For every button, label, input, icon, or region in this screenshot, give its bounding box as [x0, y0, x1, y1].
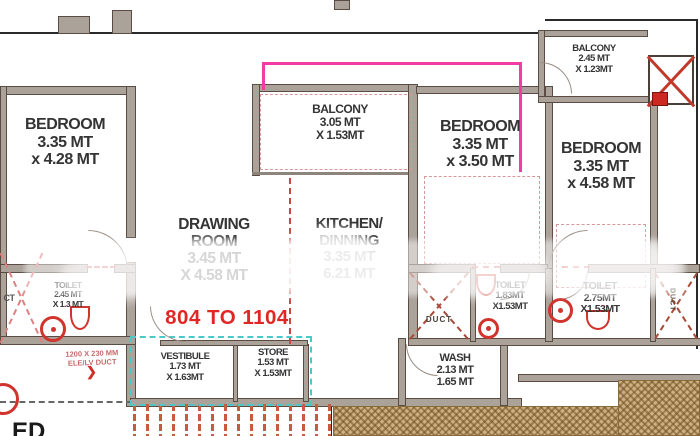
magenta-line-left	[262, 62, 265, 90]
duct-label-right: DUCT	[668, 288, 676, 311]
wall-segment	[538, 30, 648, 37]
wall-pier	[334, 0, 350, 10]
wall-segment	[252, 84, 260, 176]
wall-pier	[112, 10, 132, 34]
wc-fixture-icon	[0, 383, 19, 415]
room-label-wash: WASH 2.13 MT 1.65 MT	[412, 352, 498, 388]
wall-segment	[252, 172, 416, 175]
wall-segment	[126, 86, 136, 238]
door-opening-dashed	[86, 266, 116, 268]
wall-segment	[0, 264, 88, 273]
plan-outline-top-right	[545, 19, 698, 21]
room-label-bedroom-right: BEDROOM 3.35 MT x 4.58 MT	[551, 140, 651, 193]
door-opening-dashed	[472, 266, 500, 268]
room-label-drawing-room: DRAWING ROOM 3.45 MT X 4.58 MT	[148, 216, 280, 284]
room-label-kitchen-dining: KITCHEN/ DINNING 3.35 MT 6.21 MT	[291, 216, 407, 282]
red-shaft-box	[652, 92, 668, 106]
room-label-toilet-left: TOILET 2.45 MT X 1.3 MT	[32, 281, 104, 309]
door-arc	[88, 230, 128, 270]
wall-segment	[538, 96, 656, 103]
door-opening-dashed	[562, 266, 590, 268]
room-label-store: STORE 1.53 MT X 1.53MT	[240, 348, 306, 379]
plan-outline-right	[696, 19, 698, 349]
door-arc	[548, 230, 588, 270]
wall-segment	[0, 86, 133, 95]
wall-segment	[416, 86, 553, 94]
furniture-outline	[424, 176, 540, 264]
room-label-vestibule: VESTIBULE 1.73 MT X 1.63MT	[138, 352, 232, 383]
terrace-hatch	[618, 380, 700, 436]
wall-segment	[0, 336, 136, 345]
wall-segment	[650, 268, 656, 342]
wc-fixture-icon	[40, 316, 66, 342]
room-label-balcony-center: BALCONY 3.05 MT X 1.53MT	[280, 103, 400, 143]
duct-label-middle: DUCT	[414, 316, 464, 325]
wall-segment	[408, 264, 476, 273]
wall-segment	[398, 338, 406, 406]
wall-segment	[650, 103, 658, 272]
partial-caption-text: ED	[12, 418, 45, 436]
wc-fixture-icon	[478, 318, 499, 339]
unit-range-text: 804 TO 1104	[146, 306, 308, 330]
room-label-toilet-right: TOILET 2.75MT X1.53MT	[556, 281, 644, 316]
wall-segment	[408, 338, 700, 346]
room-label-bedroom-center: BEDROOM 3.35 MT x 3.50 MT	[418, 118, 542, 171]
room-label-balcony-top-right: BALCONY 2.45 MT X 1.23MT	[548, 44, 640, 75]
floor-plan: BEDROOM 3.35 MT x 4.28 MT BALCONY 3.05 M…	[0, 0, 700, 436]
duct-label-left-partial: CT	[0, 294, 18, 304]
wall-segment	[252, 84, 416, 92]
room-label-toilet-middle: TOILET 1.83MT X1.53MT	[474, 281, 546, 312]
duct-arrow-icon: ❯	[86, 364, 97, 380]
room-label-bedroom-left: BEDROOM 3.35 MT x 4.28 MT	[4, 116, 126, 169]
building-edge-dashed	[0, 401, 132, 403]
wall-pier	[58, 16, 90, 34]
wall-segment	[500, 338, 508, 406]
magenta-line-top	[262, 62, 522, 65]
pergola-lines	[133, 404, 331, 436]
basin-fixture-icon	[70, 306, 90, 330]
